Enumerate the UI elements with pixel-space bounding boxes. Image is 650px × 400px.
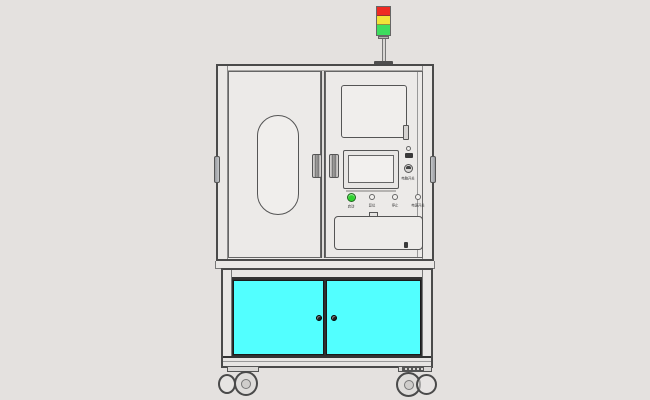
indicator-light-icon: [406, 146, 411, 151]
usb-port-icon: [405, 153, 413, 158]
door-handle-right: [329, 154, 339, 178]
top-window-latch: [403, 125, 409, 140]
signal-tower: [376, 6, 392, 66]
door-knob-left-icon: [316, 315, 322, 321]
side-handle-right: [430, 156, 436, 183]
caster-right-hub: [404, 380, 414, 390]
caster-left-wheel: [234, 371, 258, 396]
tower-light-yellow-icon: [377, 16, 390, 25]
access-panel: [334, 216, 423, 250]
tower-light-green-icon: [377, 25, 390, 35]
access-panel-latch: [404, 242, 408, 248]
power-button-label: 电源开关: [407, 204, 429, 207]
start-button: [347, 193, 356, 202]
access-panel-tab: [369, 212, 378, 217]
caster-left-hub: [241, 379, 251, 389]
door-knob-right-icon: [331, 315, 337, 321]
tower-light-red-icon: [377, 7, 390, 16]
tower-pole: [382, 39, 386, 62]
machine-front-view: 电脑开关 启动 复位 停止 电源开关: [0, 0, 650, 400]
top-window: [341, 85, 407, 138]
caster-left: [216, 364, 264, 400]
caster-right-brake-plate: [402, 367, 424, 371]
lower-post-left: [223, 270, 232, 366]
door-handle-left: [312, 154, 322, 178]
stop-button-label: 停止: [384, 204, 406, 207]
lower-bottom-rail-line: [223, 361, 431, 362]
hmi-base: [346, 190, 396, 192]
key-switch-slot: [406, 166, 411, 169]
switch-label: 电脑开关: [397, 177, 419, 180]
stop-button: [392, 194, 398, 200]
side-handle-left: [214, 156, 220, 183]
cabinet-door-left: [233, 280, 324, 355]
key-switch-icon: [404, 164, 413, 173]
lower-top-rail: [232, 270, 422, 279]
power-button: [415, 194, 421, 200]
tower-light-stack: [376, 6, 391, 36]
cabinet-door-right: [326, 280, 421, 355]
lower-post-right: [422, 270, 431, 366]
hmi-screen: [348, 155, 394, 183]
caster-right: [394, 364, 440, 400]
oval-window: [257, 115, 299, 215]
caster-right-swivel-ring: [416, 374, 437, 395]
reset-button-label: 复位: [361, 204, 383, 207]
start-button-label: 启动: [340, 205, 362, 208]
reset-button: [369, 194, 375, 200]
